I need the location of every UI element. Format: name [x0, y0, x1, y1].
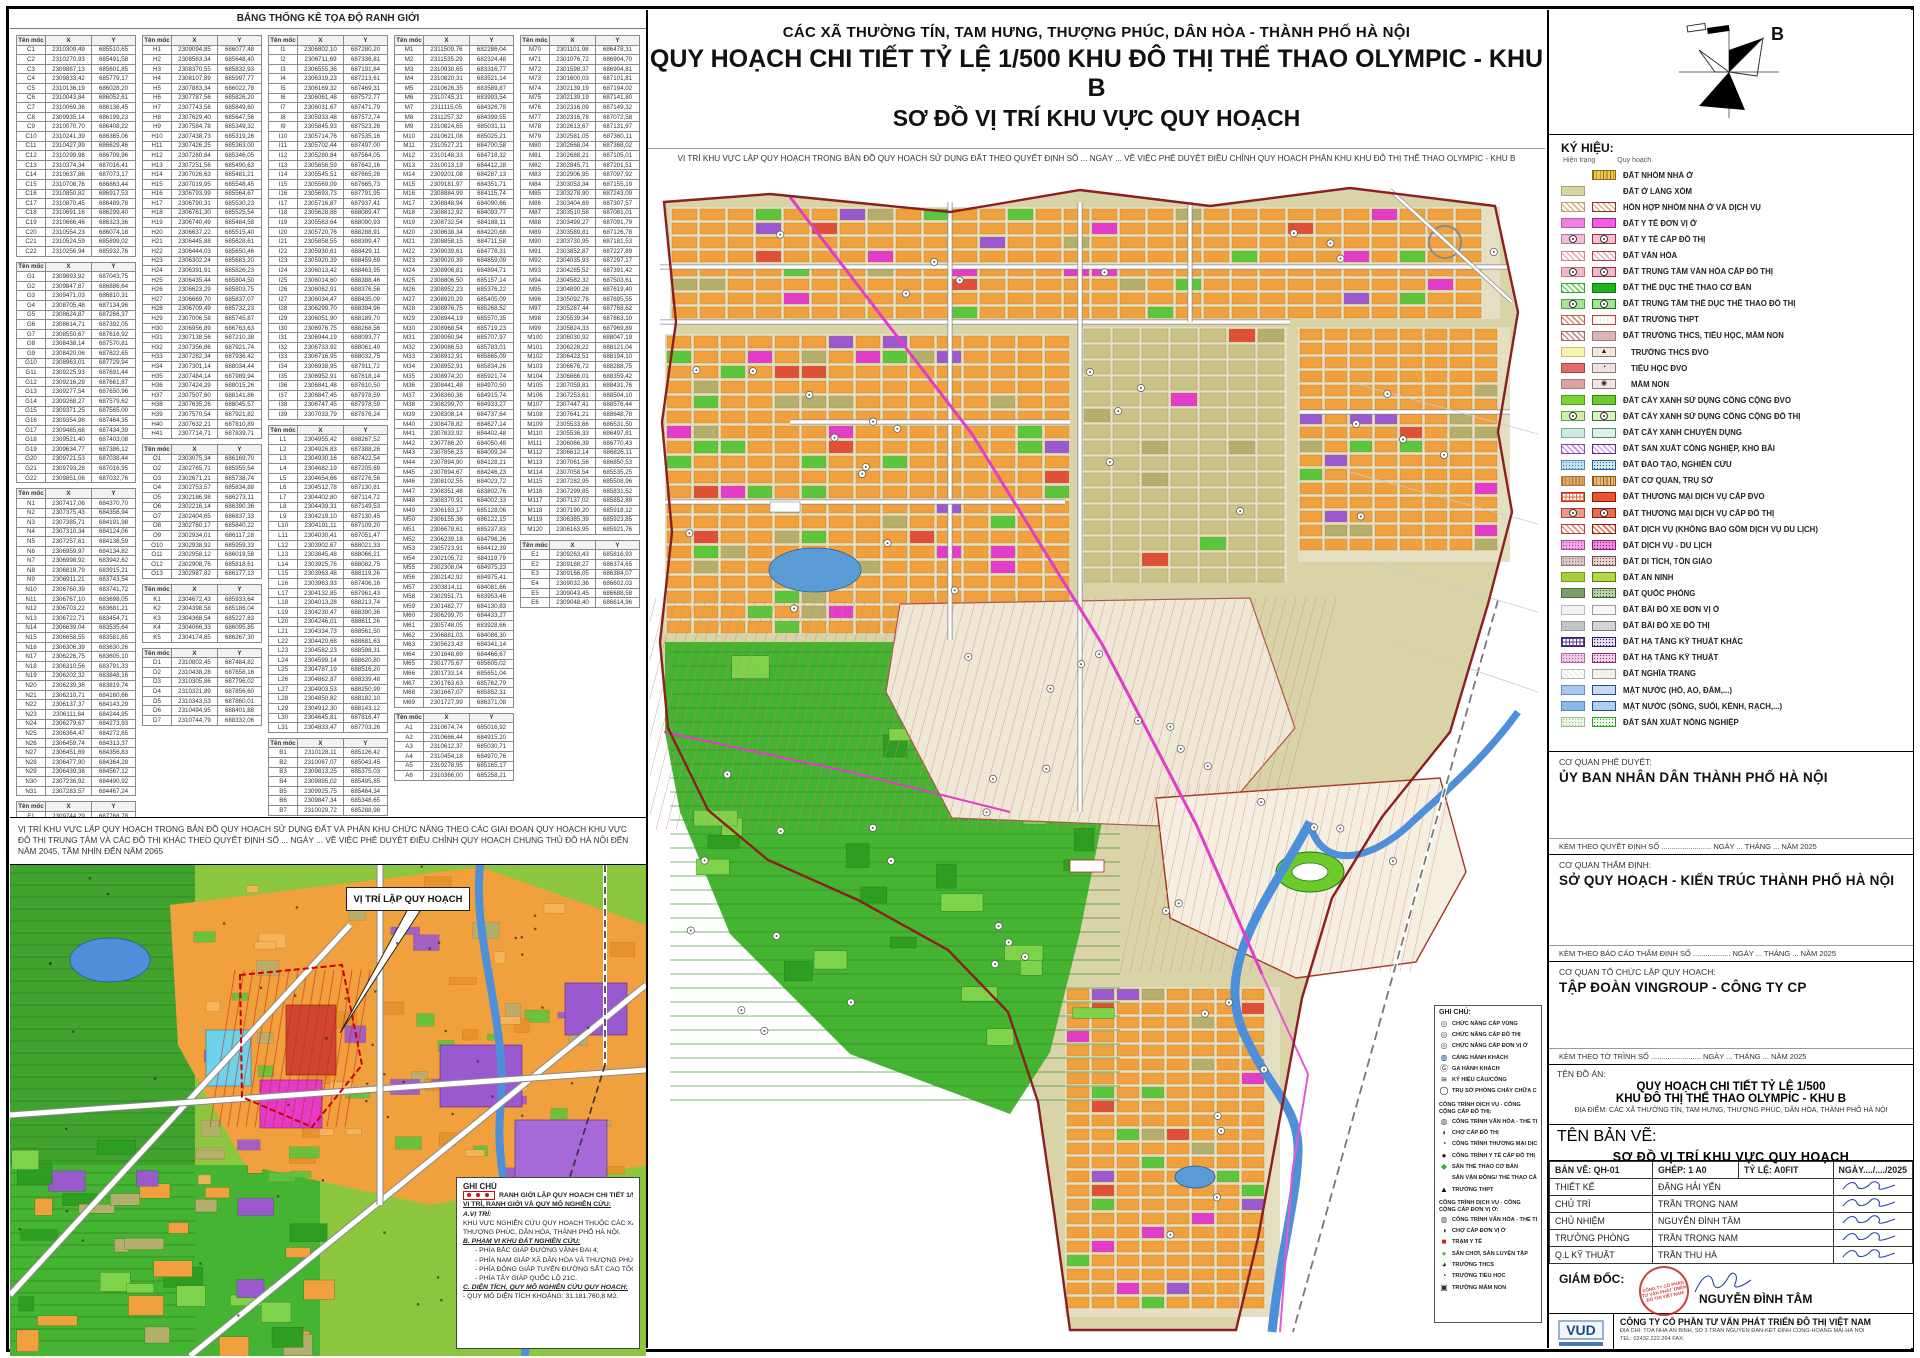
coord-row: L82304439,31687149,53	[269, 502, 388, 512]
legend-row: ▲TRƯỜNG THCS ĐVO	[1561, 344, 1903, 360]
company-logo: VUD	[1549, 1314, 1614, 1352]
coord-row: N182306310,56683791,33	[17, 662, 136, 672]
coord-row: O32302671,21685738,74	[143, 473, 262, 483]
coord-row: H402307632,21687810,89	[143, 419, 262, 429]
map-symbol-item: ●SÂN CHƠI, SÂN LUYỆN TẬP	[1439, 1248, 1537, 1259]
legend-col-planned: Quy hoạch	[1617, 157, 1651, 164]
coord-row: L172304132,85687961,43	[269, 588, 388, 598]
coord-row: M562302142,92684975,41	[395, 573, 514, 583]
title-block-cell	[1833, 1246, 1912, 1263]
coord-row: M942304582,32687503,61	[521, 275, 640, 285]
note-line: PHÍA TÂY GIÁP QUỐC LỘ 21C.	[463, 1274, 633, 1283]
coord-row: L52304654,66687276,56	[269, 473, 388, 483]
coord-row: M1072307447,41688576,44	[521, 400, 640, 410]
coord-row: N32307385,71684191,98	[17, 518, 136, 528]
legend-row: ĐẤT HẠ TẦNG KỸ THUẬT	[1561, 650, 1903, 666]
legend-row: ĐẤT AN NINH	[1561, 569, 1903, 585]
company-info: CÔNG TY CỔ PHẦN TƯ VẤN PHÁT TRIỂN ĐÔ THỊ…	[1614, 1314, 1913, 1352]
coord-row: N282306477,90684364,28	[17, 757, 136, 767]
coord-row: M412307833,92684402,48	[395, 429, 514, 439]
coord-row: I142305545,51687665,26	[269, 170, 388, 180]
map-symbol-item: ▣TRƯỜNG MẦM NON	[1439, 1282, 1537, 1293]
coord-row: M632305623,43684341,14	[395, 640, 514, 650]
legend-row: ĐẤT THƯƠNG MẠI DỊCH VỤ CẤP ĐVO	[1561, 489, 1903, 505]
coord-row: N22307375,43684356,94	[17, 508, 136, 518]
coord-row: N212306210,71684160,66	[17, 690, 136, 700]
coord-row: N192306202,32683848,16	[17, 671, 136, 681]
map-symbol-item: ◔CÔNG TRÌNH THƯƠNG MẠI DỊCH VỤ CẤP ĐÔ TH…	[1439, 1139, 1537, 1150]
coord-row: M72311115,05684326,78	[395, 103, 514, 113]
coord-row: L292304912,30688143,12	[269, 703, 388, 713]
coord-row: I192305563,64688090,93	[269, 218, 388, 228]
coord-row: M492306163,17685128,06	[395, 506, 514, 516]
coord-row: H222306444,03685650,46	[143, 247, 262, 257]
legend-row: MẶT NƯỚC (SÔNG, SUỐI, KÊNH, RẠCH,...)	[1561, 698, 1903, 714]
coord-row: M1082307641,21688648,78	[521, 410, 640, 420]
coord-row: C182310691,16686299,40	[17, 208, 136, 218]
map-symbol-item: ◎CHỨC NĂNG CẤP VÙNG	[1439, 1018, 1537, 1029]
coord-row: B62309847,34685348,65	[269, 796, 388, 806]
coord-row: M1042306866,01688359,42	[521, 371, 640, 381]
coord-row: L192304230,47688390,36	[269, 608, 388, 618]
coord-row: I242306013,42688463,95	[269, 266, 388, 276]
project-name-box: TÊN ĐỒ ÁN: QUY HOẠCH CHI TIẾT TỶ LỆ 1/50…	[1549, 1065, 1913, 1125]
signature-icon	[1839, 1179, 1899, 1193]
coord-row: A12310674,74685016,92	[395, 723, 514, 733]
coord-row: M892303589,81687126,78	[521, 227, 640, 237]
coord-row: M652301775,67685605,02	[395, 659, 514, 669]
coord-row: M122310148,33684718,32	[395, 151, 514, 161]
legend-row: ĐẤT NGHĨA TRANG	[1561, 666, 1903, 682]
coord-row: C122310299,98686709,96	[17, 151, 136, 161]
coord-table: Tên mốcXYC12310309,49685510,65C22310270,…	[16, 35, 136, 257]
note-line: GHI CHÚ	[463, 1182, 633, 1191]
coord-row: C32309887,13685601,85	[17, 64, 136, 74]
coord-row: M852303278,90687243,09	[521, 189, 640, 199]
map-symbol-item: ◆SÂN THỂ THAO CƠ BẢN	[1439, 1161, 1537, 1172]
approval-section: CƠ QUAN TỔ CHỨC LẬP QUY HOẠCH: TẬP ĐOÀN …	[1549, 962, 1913, 1065]
coord-row: M592301482,77684130,83	[395, 602, 514, 612]
coord-table: Tên mốcXYL12304955,42688267,52L22304926,…	[268, 425, 388, 733]
coord-row: M142309201,08684287,13	[395, 170, 514, 180]
coord-row: M252308806,50685157,14	[395, 275, 514, 285]
coord-tables: Tên mốcXYC12310309,49685510,65C22310270,…	[10, 29, 646, 817]
coord-row: B42309895,02685495,85	[269, 777, 388, 787]
coord-table: Tên mốcXYI12306802,10687280,20I22306711,…	[268, 35, 388, 420]
coord-row: B52309925,75685464,34	[269, 786, 388, 796]
note-line: KHU VỰC NGHIÊN CỨU QUY HOẠCH THUỘC CÁC X…	[463, 1219, 633, 1228]
coord-row: M902303730,95687181,53	[521, 237, 640, 247]
coord-row: N312307283,57684467,24	[17, 786, 136, 796]
coord-row: B72310029,72685288,98	[269, 805, 388, 815]
coord-row: D22310438,28687658,16	[143, 668, 262, 678]
drawing-name-box: TÊN BẢN VẼ: SƠ ĐỒ VỊ TRÍ KHU VỰC QUY HOẠ…	[1549, 1125, 1913, 1161]
coord-table: Tên mốcXYF12309744,29687768,78F22309704,…	[16, 801, 136, 817]
coord-table: Tên mốcXYD12310802,45687484,82D22310438,…	[142, 648, 262, 726]
coord-row: M192308732,54684188,11	[395, 218, 514, 228]
coord-row: I92305845,93687523,26	[269, 122, 388, 132]
coord-row: M1022306423,51688194,10	[521, 352, 640, 362]
coord-row: M172308848,94684090,66	[395, 199, 514, 209]
coord-row: M882303499,27687091,79	[521, 218, 640, 228]
legend-row: ĐẤT HẠ TẦNG KỸ THUẬT KHÁC	[1561, 634, 1903, 650]
coord-row: E32309166,05686384,07	[521, 569, 640, 579]
coord-row: H242306391,91685826,23	[143, 266, 262, 276]
coord-row: I72306031,67687471,79	[269, 103, 388, 113]
coord-row: N142306639,04683535,64	[17, 623, 136, 633]
coord-row: H12309094,85686077,48	[143, 45, 262, 55]
signature-icon	[1839, 1213, 1899, 1227]
coord-row: O62302216,14686390,36	[143, 502, 262, 512]
coord-row: M222309039,61684778,31	[395, 247, 514, 257]
boundary-symbol	[463, 1191, 495, 1200]
section-note: KÈM THEO QUYẾT ĐỊNH SỐ .................…	[1549, 838, 1913, 854]
coord-row: M282308976,75685268,52	[395, 304, 514, 314]
coord-row: A22310666,44684915,20	[395, 732, 514, 742]
section-note: KÈM THEO BÁO CÁO THẨM ĐỊNH SỐ ..........…	[1549, 945, 1913, 961]
coord-row: G112309225,93687691,44	[17, 368, 136, 378]
coord-row: M982305539,34687863,10	[521, 314, 640, 324]
coord-row: M1102305536,33686497,81	[521, 429, 640, 439]
coord-row: A52310278,95685165,17	[395, 761, 514, 771]
coord-row: M872303510,58687081,01	[521, 208, 640, 218]
map-symbol-item: ■TRẠM Y TẾ	[1439, 1237, 1537, 1248]
coord-table: Tên mốcXYE12309263,43685816,93E22309188,…	[520, 540, 640, 608]
coord-table: Tên mốcXYG12309893,92687043,75G22309847,…	[16, 262, 136, 484]
coord-row: L162303963,93687406,16	[269, 579, 388, 589]
coord-row: M1002306030,92688047,19	[521, 333, 640, 343]
coord-row: H102307438,73685319,26	[143, 131, 262, 141]
coord-row: B22310067,07685043,45	[269, 757, 388, 767]
coord-row: M482308370,91684002,33	[395, 496, 514, 506]
coord-row: N152306658,55683581,65	[17, 633, 136, 643]
coord-row: H82307629,40685647,56	[143, 112, 262, 122]
coord-row: M582302951,71683953,46	[395, 592, 514, 602]
coord-row: L152303963,48688119,26	[269, 569, 388, 579]
coord-row: H412307714,71687839,71	[143, 429, 262, 439]
coord-row: L212304334,73688561,50	[269, 627, 388, 637]
coord-row: H202306637,22685515,40	[143, 227, 262, 237]
coord-row: M92310824,65685031,11	[395, 122, 514, 132]
north-arrow-box: B	[1549, 10, 1913, 135]
coord-row: I102305714,76687535,16	[269, 131, 388, 141]
coord-row: L102304191,11687109,20	[269, 521, 388, 531]
coord-row: N102306760,39683741,72	[17, 585, 136, 595]
coord-row: L32304930,16687422,54	[269, 454, 388, 464]
coord-row: M372308360,36684915,74	[395, 390, 514, 400]
legend-row: ĐẤT NHÓM NHÀ Ở	[1561, 167, 1903, 183]
legend-row: ĐẤT THỂ DỤC THỂ THAO CƠ BẢN	[1561, 280, 1903, 296]
coord-row: H192306740,49685484,58	[143, 218, 262, 228]
coord-row: C172310870,45686489,78	[17, 199, 136, 209]
coord-row: F12309744,29687768,78	[17, 811, 136, 817]
coord-row: I22306711,69687336,81	[269, 55, 388, 65]
coord-row: N112306767,10683698,05	[17, 594, 136, 604]
coord-row: O92302934,01686117,28	[143, 531, 262, 541]
coord-row: N72306998,92683942,62	[17, 556, 136, 566]
coord-row: M342308952,91685834,26	[395, 362, 514, 372]
coord-row: L242304599,14688620,80	[269, 656, 388, 666]
coord-row: M772302316,78687072,58	[521, 112, 640, 122]
title-block-cell	[1833, 1178, 1912, 1195]
company-tel: TEL: 02432.222.264 FAX:	[1620, 1336, 1907, 1342]
coord-row: H282306709,49685732,23	[143, 304, 262, 314]
coord-row: H212306445,88685628,61	[143, 237, 262, 247]
coord-table: Tên mốcXYA12310674,74685016,92A22310666,…	[394, 713, 514, 781]
coord-row: I282306299,70688394,96	[269, 304, 388, 314]
coord-row: M602306299,70684433,27	[395, 611, 514, 621]
coord-row: A42310454,18684970,76	[395, 751, 514, 761]
coord-row: M12311509,76682286,04	[395, 45, 514, 55]
coord-row: I202305720,76688288,91	[269, 227, 388, 237]
coord-row: M802302668,04687368,02	[521, 141, 640, 151]
legend-row: ĐẤT CƠ QUAN, TRỤ SỞ	[1561, 473, 1903, 489]
coord-row: M452307894,67684246,23	[395, 467, 514, 477]
legend-row: HỖN HỢP NHÓM NHÀ Ở VÀ DỊCH VỤ	[1561, 199, 1903, 215]
title-block-cell	[1833, 1195, 1912, 1212]
notes-box: GHI CHÚRANH GIỚI LẬP QUY HOẠCH CHI TIẾT …	[456, 1177, 640, 1349]
coord-row: L62304512,78687130,81	[269, 483, 388, 493]
coord-row: H352307484,14687989,94	[143, 371, 262, 381]
coord-row: G182309521,40687403,08	[17, 435, 136, 445]
coord-row: M1162307299,85685831,52	[521, 486, 640, 496]
legend-row: MẶT NƯỚC (HỒ, AO, ĐẦM,...)	[1561, 682, 1903, 698]
coord-row: M352308974,20685921,74	[395, 371, 514, 381]
coord-row: N242306279,67684273,93	[17, 719, 136, 729]
left-paragraph: VỊ TRÍ KHU VỰC LẬP QUY HOẠCH TRONG BẢN Đ…	[10, 817, 646, 865]
note-line: PHÍA BẮC GIÁP ĐƯỜNG VÀNH ĐAI 4;	[463, 1246, 633, 1255]
signature-icon	[1839, 1247, 1899, 1261]
coord-row: C52310136,19686028,20	[17, 83, 136, 93]
coord-row: G202309721,53687038,44	[17, 454, 136, 464]
coord-row: L92304219,10687130,45	[269, 512, 388, 522]
legend-row: ĐẤT VĂN HÓA	[1561, 247, 1903, 263]
coord-row: M182308812,92684093,77	[395, 208, 514, 218]
coord-row: M522306239,18684796,26	[395, 534, 514, 544]
coord-row: M1182307190,20685918,12	[521, 506, 640, 516]
coord-row: N222306137,37684143,29	[17, 700, 136, 710]
legend-row: ĐẤT THƯƠNG MẠI DỊCH VỤ CẤP ĐÔ THỊ	[1561, 505, 1903, 521]
company-logo-bar	[1559, 1342, 1603, 1346]
coord-row: M102310621,08685025,21	[395, 131, 514, 141]
coord-row: C112310427,99686629,46	[17, 141, 136, 151]
coord-row: G12309893,92687043,75	[17, 272, 136, 282]
legend-row: ◉MẦM NON	[1561, 376, 1903, 392]
map-symbols-legend: GHI CHÚ:◎CHỨC NĂNG CẤP VÙNG◎CHỨC NĂNG CẤ…	[1434, 1005, 1542, 1323]
map-subtitle: VỊ TRÍ KHU VỰC LẬP QUY HOẠCH TRONG BẢN Đ…	[648, 148, 1545, 163]
section-label: CƠ QUAN THẨM ĐỊNH:	[1559, 860, 1903, 870]
title-block-cell: ĐẶNG HẢI YẾN	[1653, 1178, 1834, 1195]
coord-row: L232304582,23688598,31	[269, 646, 388, 656]
coord-row: C12310309,49685510,65	[17, 45, 136, 55]
coord-row: I132305656,59687642,16	[269, 160, 388, 170]
coord-row: M442307894,90684128,21	[395, 458, 514, 468]
coord-row: I322306733,92688061,49	[269, 343, 388, 353]
map-symbol-item: ◔TRƯỜNG TIỂU HỌC	[1439, 1271, 1537, 1282]
legend-row: ĐẤT Y TẾ CẤP ĐÔ THỊ	[1561, 231, 1903, 247]
note-line: PHÍA ĐÔNG GIÁP TUYẾN ĐƯỜNG SẮT CAO TỐC B…	[463, 1265, 633, 1274]
coord-row: M832302906,95687097,92	[521, 170, 640, 180]
coord-row: D42310321,89687856,60	[143, 687, 262, 697]
section-agency: SỞ QUY HOẠCH - KIẾN TRÚC THÀNH PHỐ HÀ NỘ…	[1559, 873, 1903, 888]
coord-row: M112310527,21684700,58	[395, 141, 514, 151]
coord-row: M532305723,91684412,39	[395, 544, 514, 554]
coord-row: H292307006,58685745,87	[143, 314, 262, 324]
map-symbol-item: ◍CÔNG TRÌNH VĂN HÓA - THỂ THAO CẤP ĐƠN V…	[1439, 1214, 1537, 1225]
title-block-table: BẢN VẼ: QH-01GHÉP: 1 A0TỶ LỆ: A0FITNGÀY.…	[1549, 1161, 1913, 1264]
map-symbol-item: ●CÔNG TRÌNH Y TẾ CẤP ĐÔ THỊ	[1439, 1150, 1537, 1161]
title-block-cell	[1833, 1229, 1912, 1246]
coord-row: M332308912,91685865,09	[395, 352, 514, 362]
coord-row: D72310744,79688332,06	[143, 715, 262, 725]
coord-row: M392308308,14684737,64	[395, 410, 514, 420]
coord-row: N252306364,47684272,65	[17, 729, 136, 739]
coord-row: L282304850,82688182,10	[269, 694, 388, 704]
coord-row: C202310554,23686074,18	[17, 227, 136, 237]
coord-row: M922304035,93687297,17	[521, 256, 640, 266]
coord-row: M1122306612,14686826,11	[521, 448, 640, 458]
coord-row: M312309060,94685707,97	[395, 333, 514, 343]
coord-row: M612305748,05683928,66	[395, 621, 514, 631]
legend-row: ĐẤT BÃI ĐỖ XE ĐƠN VỊ Ở	[1561, 602, 1903, 618]
coord-row: G212309793,28687016,95	[17, 464, 136, 474]
coord-row: M1062307253,61688504,10	[521, 390, 640, 400]
map-title-line1: CÁC XÃ THƯỜNG TÍN, TAM HƯNG, THƯỢNG PHÚC…	[648, 24, 1545, 41]
coord-row: K12304672,43685933,64	[143, 594, 262, 604]
coord-row: O12303075,34686169,70	[143, 454, 262, 464]
coord-row: M762302316,09687149,32	[521, 103, 640, 113]
coord-row: L12304955,42688267,52	[269, 435, 388, 445]
legend-row: ĐẤT TRƯỜNG THPT	[1561, 312, 1903, 328]
coord-row: M862303404,69687307,57	[521, 199, 640, 209]
coord-table: Tên mốcXYM702301101,98686478,31M71230107…	[520, 35, 640, 535]
coord-row: M1052307059,81688431,76	[521, 381, 640, 391]
coord-row: H42308107,89685997,77	[143, 74, 262, 84]
coord-row: E42309032,36686602,03	[521, 579, 640, 589]
title-block-cell: CHỦ TRÌ	[1550, 1195, 1653, 1212]
project-label: TÊN ĐỒ ÁN:	[1557, 1069, 1905, 1079]
coord-row: O22302765,71685955,54	[143, 464, 262, 474]
coord-row: I382306747,45687978,59	[269, 400, 388, 410]
coord-row: I252306014,60688388,46	[269, 275, 388, 285]
coord-row: M292308944,19685570,35	[395, 314, 514, 324]
section-agency: TẬP ĐOÀN VINGROUP - CÔNG TY CP	[1559, 980, 1903, 995]
legend-row: ĐẤT TRƯỜNG THCS, TIỂU HỌC, MẦM NON	[1561, 328, 1903, 344]
coord-row: I232305920,39688459,69	[269, 256, 388, 266]
coord-row: L112304030,41687051,47	[269, 531, 388, 541]
title-block-cell: CHỦ NHIỆM	[1550, 1212, 1653, 1229]
coord-row: G52308624,87687266,37	[17, 310, 136, 320]
note-line: A.VỊ TRÍ:	[463, 1210, 633, 1219]
coord-row: M462308102,55684023,72	[395, 477, 514, 487]
coord-row: M402308478,82684627,14	[395, 419, 514, 429]
coord-row: I42306319,23687213,61	[269, 74, 388, 84]
coord-row: I342306938,95687911,72	[269, 362, 388, 372]
coord-row: D62310494,95688401,88	[143, 706, 262, 716]
coord-row: E62309048,40686614,96	[521, 598, 640, 608]
coord-row: M1132307061,56686850,53	[521, 458, 640, 468]
coord-tables-title: BẢNG THỐNG KÊ TỌA ĐỘ RANH GIỚI	[10, 10, 646, 29]
map-symbol-item: ◕TRƯỜNG THCS	[1439, 1259, 1537, 1270]
approval-section: CƠ QUAN THẨM ĐỊNH: SỞ QUY HOẠCH - KIẾN T…	[1549, 855, 1913, 962]
project-line3: ĐỊA ĐIỂM: CÁC XÃ THƯỜNG TÍN, TAM HƯNG, T…	[1557, 1107, 1905, 1114]
coord-row: H232306302,24685683,20	[143, 256, 262, 266]
coord-row: H302306956,89686763,63	[143, 323, 262, 333]
project-line1: QUY HOẠCH CHI TIẾT TỶ LỆ 1/500	[1557, 1081, 1905, 1093]
coord-row: M992305824,33687969,89	[521, 323, 640, 333]
coord-row: M22311535,29682324,48	[395, 55, 514, 65]
coord-row: M382308299,70684933,27	[395, 400, 514, 410]
coord-row: I162305693,73687791,95	[269, 189, 388, 199]
coord-row: H362307424,29688015,26	[143, 381, 262, 391]
company-stamp: CÔNG TY CỔ PHẦN TƯ VẤN PHÁT TRIỂN ĐÔ THỊ…	[1634, 1261, 1693, 1320]
coord-row: M1152307282,95685508,96	[521, 477, 640, 487]
coord-row: M812302688,21687105,01	[521, 151, 640, 161]
coord-row: B12310128,11685126,42	[269, 748, 388, 758]
coord-row: L262304862,87688339,48	[269, 675, 388, 685]
coord-row: I152305569,09687665,73	[269, 179, 388, 189]
coord-row: C42309833,42685779,17	[17, 74, 136, 84]
legend-row: ĐẤT DỊCH VỤ - DU LỊCH	[1561, 537, 1903, 553]
coord-row: I352306952,91687618,14	[269, 371, 388, 381]
coord-row: N82306818,79683915,21	[17, 566, 136, 576]
coord-row: L272304903,53688250,99	[269, 684, 388, 694]
note-line: RANH GIỚI LẬP QUY HOẠCH CHI TIẾT 1/500	[463, 1191, 633, 1200]
company-strip: VUD CÔNG TY CỔ PHẦN TƯ VẤN PHÁT TRIỂN ĐÔ…	[1549, 1314, 1913, 1352]
legend-row: ĐẤT TRUNG TÂM THỂ DỤC THỂ THAO ĐÔ THỊ	[1561, 296, 1903, 312]
coord-row: M1202306163,95685921,76	[521, 525, 640, 535]
coord-row: M502306155,36686122,15	[395, 515, 514, 525]
signature-icon	[1839, 1230, 1899, 1244]
coord-row: H332307282,34687936,42	[143, 352, 262, 362]
coord-row: H262306623,29685803,75	[143, 285, 262, 295]
coord-row: M152309181,97684351,71	[395, 179, 514, 189]
coord-row: L222304420,68688681,63	[269, 636, 388, 646]
coord-row: N62306959,97684134,82	[17, 546, 136, 556]
coord-row: H372307507,60688141,86	[143, 390, 262, 400]
coord-row: M62310745,31683993,54	[395, 93, 514, 103]
coord-row: I312306944,19688093,77	[269, 333, 388, 343]
coord-row: M962305092,78687695,55	[521, 295, 640, 305]
coord-row: M672301763,63685762,79	[395, 678, 514, 688]
coord-row: M702301101,98686478,31	[521, 45, 640, 55]
coord-row: L132303845,48688066,21	[269, 550, 388, 560]
coord-row: M1032306676,72688288,75	[521, 362, 640, 372]
coord-row: M692301727,99686371,08	[395, 697, 514, 707]
coord-row: H152307019,95685548,45	[143, 179, 262, 189]
coord-row: M792302581,05687360,11	[521, 131, 640, 141]
coord-row: M472308351,48683802,76	[395, 486, 514, 496]
coord-row: M782302613,67687131,97	[521, 122, 640, 132]
legend-col-existing: Hiện trạng	[1563, 157, 1595, 164]
coord-row: G32309471,03686810,31	[17, 291, 136, 301]
coord-row: H62307787,56685826,20	[143, 93, 262, 103]
coord-row: H112307426,25685363,00	[143, 141, 262, 151]
coord-row: L202304246,01688611,26	[269, 617, 388, 627]
coord-row: G162309354,98687464,35	[17, 416, 136, 426]
legend-column-headers: Hiện trạng Quy hoạch	[1561, 157, 1903, 164]
coord-row: I302306976,75688268,56	[269, 323, 388, 333]
coord-row: M212308858,15684711,58	[395, 237, 514, 247]
title-block-cell: TRƯỞNG PHÒNG	[1550, 1229, 1653, 1246]
coord-row: M32310930,65683316,77	[395, 64, 514, 74]
coord-row: I272306034,47688435,09	[269, 295, 388, 305]
left-panel: BẢNG THỐNG KÊ TỌA ĐỘ RANH GIỚI Tên mốcXY…	[10, 10, 648, 1348]
coord-row: O112302958,12686019,58	[143, 550, 262, 560]
coord-row: O72302404,65686837,33	[143, 512, 262, 522]
legend-row: ĐẤT CÂY XANH SỬ DỤNG CÔNG CỘNG ĐÔ THỊ	[1561, 408, 1903, 424]
map-symbol-item: ◎CHỨC NĂNG CẤP ĐƠN VỊ Ở	[1439, 1041, 1537, 1052]
